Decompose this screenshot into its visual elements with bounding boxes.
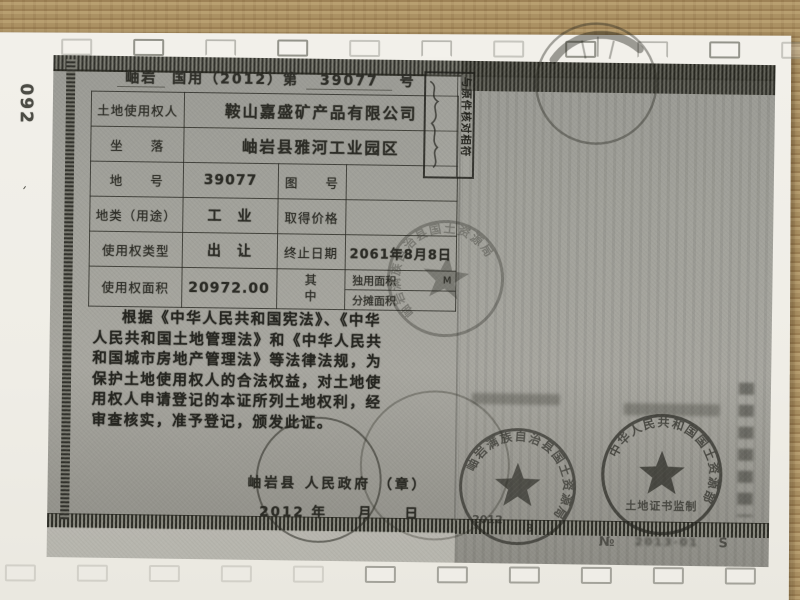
verification-stamp-text: 与原件核对相符 <box>456 74 473 177</box>
field-label-of-which: 其中 <box>276 269 345 310</box>
field-value-location: 岫岩县雅河工业园区 <box>183 127 458 166</box>
certificate-number-line: 岫岩 国用（2012）第 39077 号 <box>117 67 416 91</box>
field-label-acquisition-price: 取得价格 <box>277 199 346 235</box>
field-label-parcel-number: 地 号 <box>90 161 183 197</box>
field-value-area: 20972.00 <box>181 267 276 308</box>
serial-mark: S <box>718 536 729 551</box>
county-seal-year: 2012 <box>472 513 503 526</box>
certificate-type-text: 国用（2012）第 <box>172 71 299 89</box>
field-label-right-type: 使用权类型 <box>89 231 182 267</box>
film-perforation-row-bottom <box>5 564 756 584</box>
photo-of-document: 092 、 岫岩 国用（2012）第 39077 号 <box>0 0 800 600</box>
field-label-area: 使用权面积 <box>89 266 182 307</box>
faint-bleedthrough-text <box>472 393 560 405</box>
field-label-land-class: 地类（用途） <box>90 196 183 232</box>
region-name: 岫岩 <box>117 70 165 88</box>
field-value-right-type: 出 让 <box>182 232 277 268</box>
field-label-location: 坐 落 <box>91 126 184 162</box>
field-label-end-date: 终止日期 <box>277 234 346 270</box>
signature-scribble <box>425 73 457 176</box>
certificate-serial-line: № 2013·01 S <box>599 535 729 552</box>
photocopy-paper: 092 、 岫岩 国用（2012）第 39077 号 <box>0 32 791 600</box>
certificate-number: 39077 <box>306 73 393 91</box>
field-label-land-user: 土地使用权人 <box>91 91 184 127</box>
ministry-of-land-seal: 土地证书监制 中华人民共和国国土资源部 <box>594 407 730 543</box>
certificate-number-suffix: 号 <box>399 74 415 90</box>
serial-digits: 2013·01 <box>635 535 699 551</box>
table-row: 土地使用权人 鞍山嘉盛矿产品有限公司 <box>91 91 458 131</box>
faint-bleedthrough-text <box>624 403 720 416</box>
field-value-parcel-number: 39077 <box>183 162 278 198</box>
decorative-border-left <box>60 59 75 519</box>
scanned-certificate-area: 岫岩 国用（2012）第 39077 号 土地使用权人 鞍山嘉盛矿产品有限公司 … <box>47 55 776 567</box>
field-value-land-class: 工 业 <box>182 197 277 233</box>
serial-prefix: № <box>599 535 616 550</box>
ministry-seal-caption: 土地证书监制 <box>625 498 697 513</box>
faint-vertical-text <box>737 383 754 517</box>
copy-verification-stamp: 与原件核对相符 <box>423 71 475 179</box>
field-value-land-user: 鞍山嘉盛矿产品有限公司 <box>184 92 459 131</box>
page-lower-margin <box>47 527 455 563</box>
pen-mark: 、 <box>19 184 37 198</box>
county-seal-month: 3 <box>526 522 534 535</box>
signature-icon <box>425 73 446 171</box>
county-land-bureau-seal: 岫岩满族自治县国土资源局 2012 3 <box>452 421 584 553</box>
faint-round-stamp <box>530 18 662 150</box>
table-row: 坐 落 岫岩县雅河工业园区 <box>91 126 458 166</box>
field-label-map-number: 图 号 <box>278 164 347 200</box>
table-row: 地 号 39077 图 号 <box>90 161 457 201</box>
handwritten-page-number: 092 <box>16 83 36 105</box>
